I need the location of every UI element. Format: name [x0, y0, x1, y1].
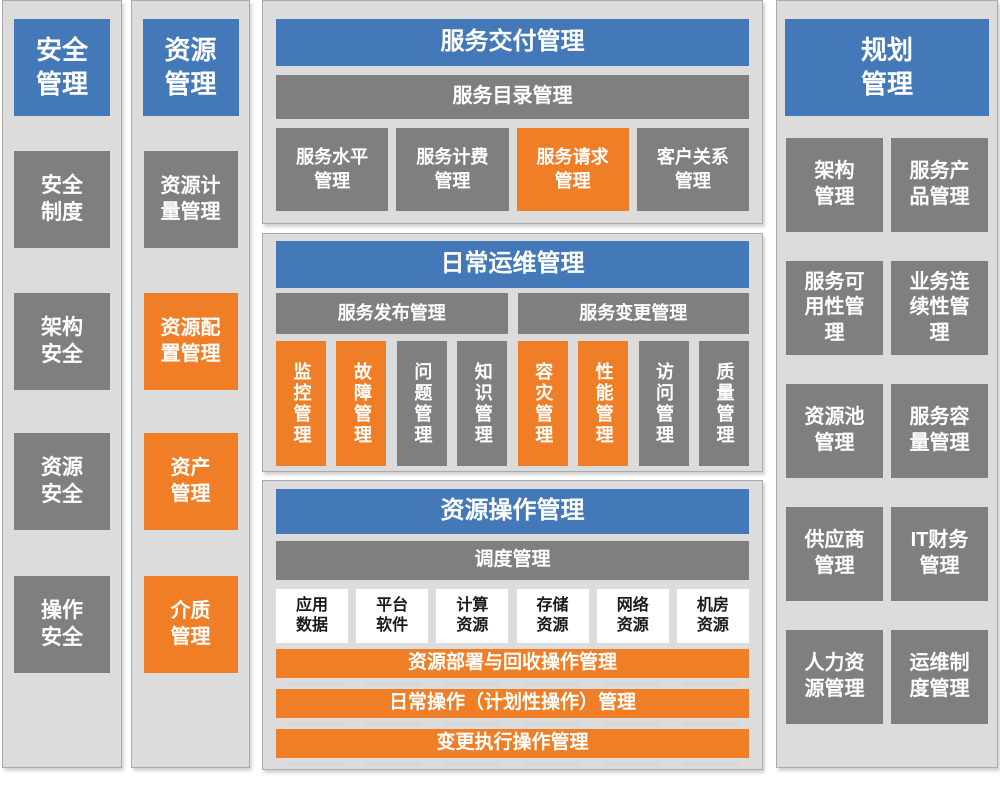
- planning-grid: 架构 管理 服务产 品管理 服务可 用性管 理 业务连 续性管 理 资源池 管理…: [785, 138, 989, 724]
- box-service-product: 服务产 品管理: [891, 138, 988, 232]
- divider-dashes: [276, 681, 749, 687]
- divider-dashes: [276, 761, 749, 767]
- security-column: 安全 管理 安全 制度 架构 安全 资源 安全 操作 安全: [2, 0, 122, 768]
- box-ops-policy: 运维制 度管理: [891, 630, 988, 724]
- security-column-title: 安全 管理: [14, 19, 110, 116]
- bar-routine-ops: 日常操作（计划性操作）管理: [276, 689, 749, 718]
- box-service-level: 服务水平 管理: [276, 128, 388, 211]
- box-service-availability: 服务可 用性管 理: [786, 261, 883, 355]
- planning-column-title: 规划 管理: [785, 19, 989, 116]
- box-problem: 问题管理: [397, 341, 447, 466]
- box-architecture-mgmt: 架构 管理: [786, 138, 883, 232]
- box-business-continuity: 业务连 续性管 理: [891, 261, 988, 355]
- dash: [287, 761, 343, 767]
- dash: [682, 721, 738, 727]
- resource-ops-panel: 资源操作管理 调度管理 应用 数据 平台 软件 计算 资源 存储 资源 网络 资…: [262, 480, 763, 770]
- resource-types-row: 应用 数据 平台 软件 计算 资源 存储 资源 网络 资源 机房 资源: [276, 589, 749, 643]
- box-customer-relationship: 客户关系 管理: [637, 128, 749, 211]
- box-service-billing: 服务计费 管理: [396, 128, 508, 211]
- service-delivery-panel: 服务交付管理 服务目录管理 服务水平 管理 服务计费 管理 服务请求 管理 客户…: [262, 0, 763, 224]
- box-storage-resource: 存储 资源: [517, 589, 589, 643]
- box-it-finance: IT财务 管理: [891, 507, 988, 601]
- box-service-catalog: 服务目录管理: [276, 75, 749, 119]
- daily-ops-title: 日常运维管理: [276, 241, 749, 288]
- box-datacenter-resource: 机房 资源: [677, 589, 749, 643]
- service-delivery-title: 服务交付管理: [276, 19, 749, 66]
- dash: [603, 721, 659, 727]
- resource-column-title: 资源 管理: [143, 19, 239, 116]
- box-quality: 质量管理: [699, 341, 749, 466]
- box-service-request: 服务请求 管理: [517, 128, 629, 211]
- dash: [524, 721, 580, 727]
- box-asset-management: 资产 管理: [144, 433, 238, 530]
- box-knowledge: 知识管理: [457, 341, 507, 466]
- divider-dashes: [276, 721, 749, 727]
- box-incident: 故障管理: [336, 341, 386, 466]
- box-platform-software: 平台 软件: [356, 589, 428, 643]
- box-compute-resource: 计算 资源: [436, 589, 508, 643]
- resource-ops-title: 资源操作管理: [276, 489, 749, 534]
- box-media-management: 介质 管理: [144, 576, 238, 673]
- box-resource-metering: 资源计 量管理: [144, 151, 238, 248]
- dash: [682, 761, 738, 767]
- daily-ops-vertical-row: 监控管理 故障管理 问题管理 知识管理 容灾管理 性能管理 访问管理 质量管理: [276, 341, 749, 466]
- service-delivery-row: 服务水平 管理 服务计费 管理 服务请求 管理 客户关系 管理: [276, 128, 749, 211]
- box-architecture-security: 架构 安全: [14, 293, 110, 390]
- box-operation-security: 操作 安全: [14, 576, 110, 673]
- box-security-policy: 安全 制度: [14, 151, 110, 248]
- dash: [287, 721, 343, 727]
- dash: [445, 761, 501, 767]
- box-app-data: 应用 数据: [276, 589, 348, 643]
- planning-column: 规划 管理 架构 管理 服务产 品管理 服务可 用性管 理 业务连 续性管 理 …: [776, 0, 998, 768]
- dash: [366, 681, 422, 687]
- box-disaster-recovery: 容灾管理: [518, 341, 568, 466]
- box-hr-mgmt: 人力资 源管理: [786, 630, 883, 724]
- daily-ops-panel: 日常运维管理 服务发布管理 服务变更管理 监控管理 故障管理 问题管理 知识管理…: [262, 233, 763, 472]
- box-supplier-mgmt: 供应商 管理: [786, 507, 883, 601]
- bar-change-execution-ops: 变更执行操作管理: [276, 729, 749, 758]
- box-service-capacity: 服务容 量管理: [891, 384, 988, 478]
- dash: [682, 681, 738, 687]
- dash: [287, 681, 343, 687]
- daily-ops-bars-row: 服务发布管理 服务变更管理: [276, 293, 749, 334]
- box-resource-pool: 资源池 管理: [786, 384, 883, 478]
- box-service-change: 服务变更管理: [518, 293, 750, 334]
- box-performance: 性能管理: [578, 341, 628, 466]
- box-service-release: 服务发布管理: [276, 293, 508, 334]
- box-network-resource: 网络 资源: [597, 589, 669, 643]
- box-monitoring: 监控管理: [276, 341, 326, 466]
- dash: [524, 761, 580, 767]
- dash: [366, 761, 422, 767]
- dash: [366, 721, 422, 727]
- dash: [603, 681, 659, 687]
- resource-column: 资源 管理 资源计 量管理 资源配 置管理 资产 管理 介质 管理: [131, 0, 250, 768]
- dash: [524, 681, 580, 687]
- box-resource-security: 资源 安全: [14, 433, 110, 530]
- dash: [603, 761, 659, 767]
- box-scheduling: 调度管理: [276, 541, 749, 580]
- bar-deploy-reclaim-ops: 资源部署与回收操作管理: [276, 649, 749, 678]
- dash: [445, 721, 501, 727]
- dash: [445, 681, 501, 687]
- box-resource-configuration: 资源配 置管理: [144, 293, 238, 390]
- box-access: 访问管理: [639, 341, 689, 466]
